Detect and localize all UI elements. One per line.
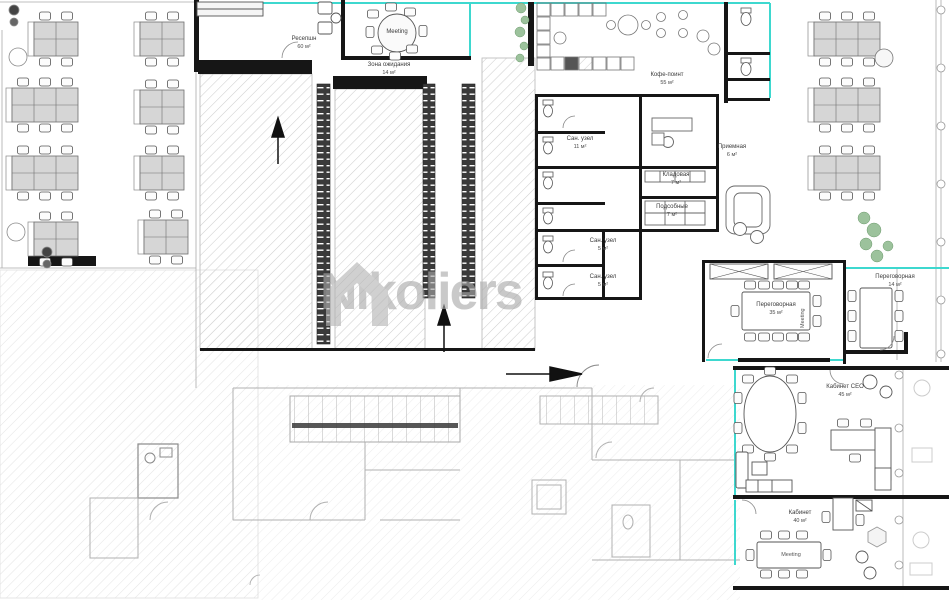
coffee-point-furniture — [537, 3, 720, 70]
reception-furniture — [197, 2, 427, 60]
hatched-core-zones — [0, 58, 740, 600]
meeting-large-furniture — [708, 264, 832, 358]
room-tag-office-meeting: Meeting — [776, 552, 806, 558]
nikoliers-logo-icon — [320, 256, 390, 328]
meeting-small-furniture — [848, 288, 903, 350]
ceo-office-furniture — [734, 367, 892, 492]
service-room-furniture — [645, 118, 770, 244]
watermark: Nikoliers — [320, 256, 522, 318]
room-tag-meeting-large: Meeting — [800, 294, 806, 328]
floor-plan: Nikoliers Ресепшн 60 м² Meeting Зона ожи… — [0, 0, 949, 600]
